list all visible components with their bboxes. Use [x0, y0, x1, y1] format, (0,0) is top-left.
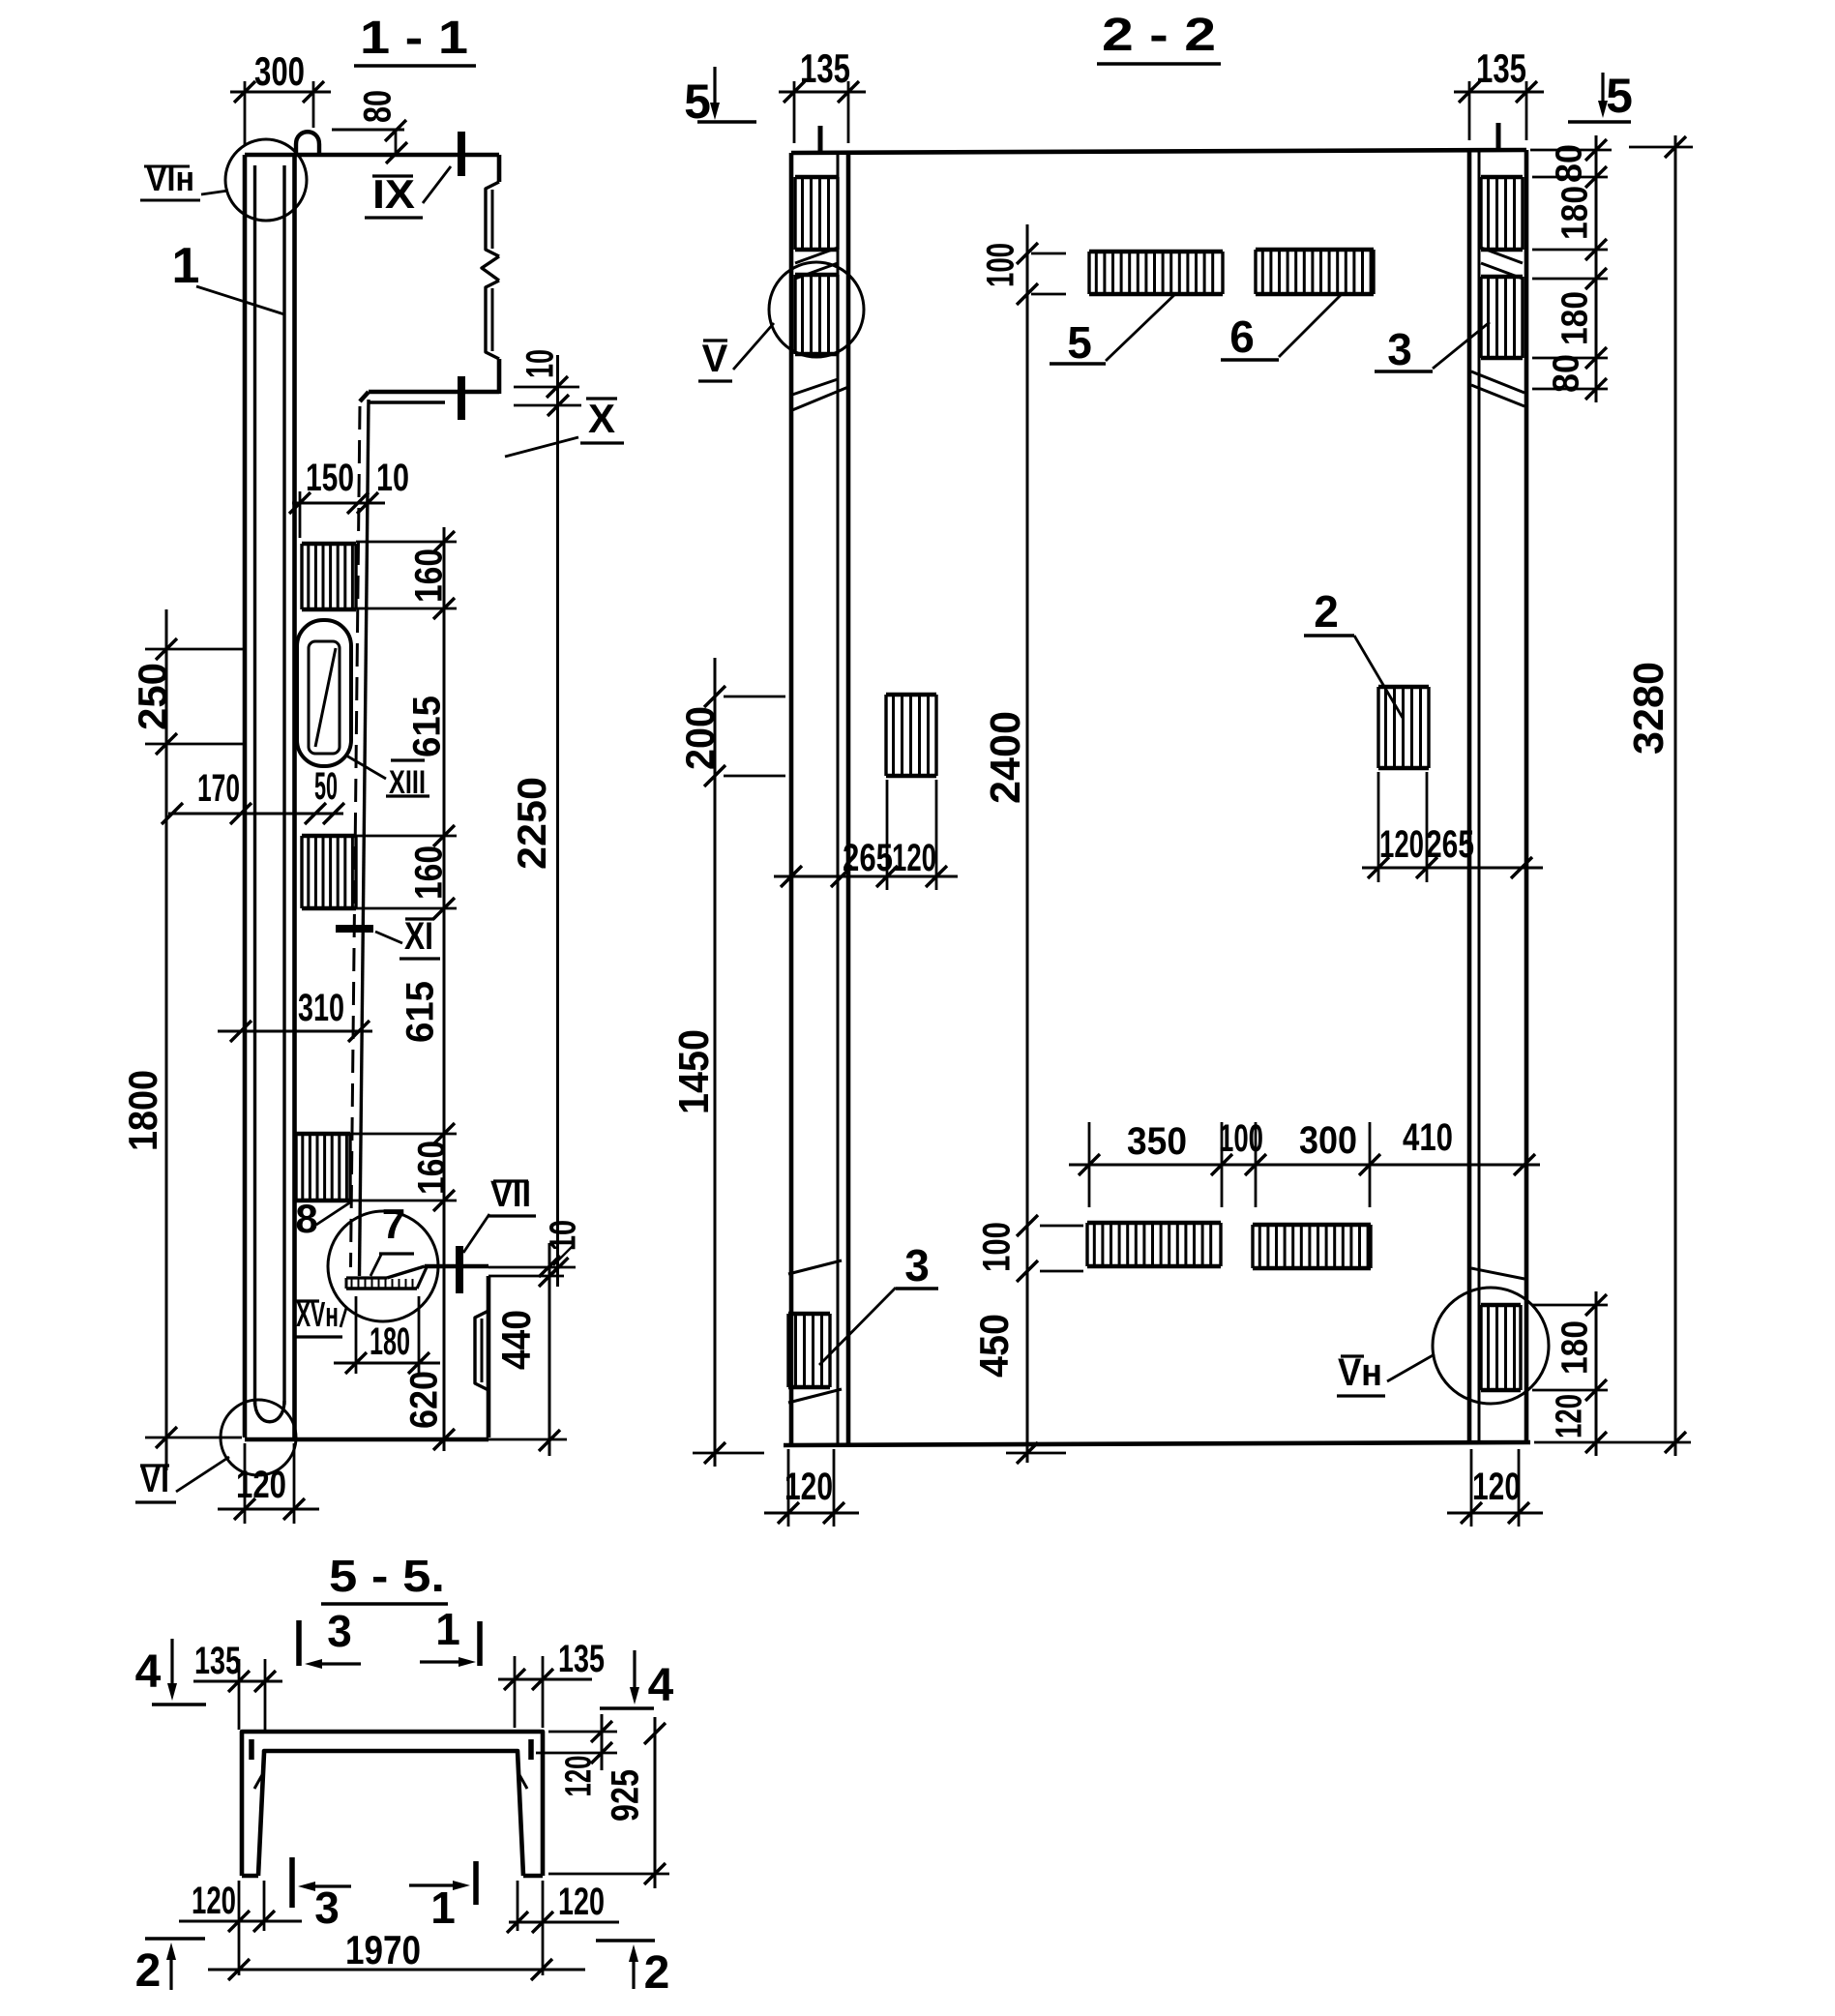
svg-text:4: 4 [135, 1646, 162, 1698]
svg-text:160: 160 [407, 845, 450, 900]
svg-text:3: 3 [1387, 324, 1412, 374]
svg-text:250: 250 [130, 663, 175, 730]
svg-text:V: V [702, 338, 728, 380]
svg-text:1800: 1800 [120, 1070, 165, 1151]
svg-text:100: 100 [1219, 1117, 1263, 1160]
svg-text:10: 10 [376, 457, 409, 499]
svg-text:120: 120 [558, 1881, 605, 1923]
svg-text:80: 80 [356, 90, 399, 123]
svg-text:620: 620 [402, 1371, 445, 1429]
svg-text:120: 120 [192, 1880, 236, 1922]
svg-text:265: 265 [1426, 823, 1474, 866]
svg-text:300: 300 [254, 48, 305, 94]
svg-text:1450: 1450 [670, 1029, 718, 1114]
svg-text:10: 10 [544, 1220, 584, 1251]
svg-text:80: 80 [1550, 144, 1590, 183]
svg-text:450: 450 [971, 1314, 1017, 1378]
svg-text:IX: IX [372, 171, 415, 217]
svg-text:50: 50 [314, 765, 338, 808]
svg-text:100: 100 [975, 1222, 1018, 1272]
svg-text:1: 1 [172, 238, 200, 294]
svg-text:VIн: VIн [146, 159, 194, 198]
svg-text:2 - 2: 2 - 2 [1102, 10, 1216, 61]
svg-text:7: 7 [382, 1201, 405, 1248]
svg-text:8: 8 [295, 1196, 317, 1241]
svg-text:2: 2 [644, 1947, 670, 1999]
svg-text:615: 615 [399, 981, 441, 1043]
svg-text:135: 135 [558, 1638, 605, 1680]
svg-text:120: 120 [892, 837, 936, 879]
svg-text:180: 180 [370, 1320, 410, 1363]
svg-text:180: 180 [1555, 1320, 1596, 1375]
svg-text:135: 135 [800, 45, 850, 91]
svg-text:4: 4 [648, 1660, 674, 1711]
svg-text:440: 440 [493, 1310, 539, 1370]
svg-text:80: 80 [1547, 354, 1587, 393]
svg-text:5: 5 [1067, 317, 1092, 368]
svg-text:120: 120 [784, 1466, 833, 1508]
svg-text:160: 160 [407, 548, 450, 603]
svg-text:5 - 5.: 5 - 5. [329, 1551, 445, 1601]
svg-text:180: 180 [1555, 291, 1596, 345]
svg-text:3: 3 [327, 1606, 352, 1656]
svg-text:5: 5 [1606, 69, 1633, 123]
svg-text:1: 1 [430, 1883, 456, 1933]
svg-text:6: 6 [1229, 311, 1255, 362]
svg-text:1970: 1970 [345, 1927, 421, 1972]
svg-text:2400: 2400 [982, 711, 1029, 804]
svg-text:120: 120 [559, 1756, 600, 1797]
svg-text:170: 170 [197, 767, 240, 810]
svg-text:135: 135 [1476, 45, 1526, 91]
svg-text:1 - 1: 1 - 1 [360, 13, 468, 64]
svg-text:XI: XI [404, 915, 433, 958]
svg-text:925: 925 [604, 1769, 646, 1822]
svg-text:410: 410 [1403, 1116, 1453, 1159]
svg-text:120: 120 [1379, 823, 1424, 866]
svg-text:2: 2 [1314, 586, 1339, 637]
svg-text:3: 3 [904, 1240, 930, 1290]
svg-text:100: 100 [979, 243, 1021, 287]
svg-text:135: 135 [194, 1640, 241, 1682]
svg-text:1: 1 [435, 1604, 460, 1654]
svg-text:160: 160 [410, 1141, 453, 1195]
svg-text:180: 180 [1555, 186, 1596, 240]
svg-text:10: 10 [518, 349, 561, 378]
svg-text:X: X [588, 396, 615, 441]
svg-text:615: 615 [405, 696, 448, 757]
svg-text:350: 350 [1127, 1120, 1187, 1163]
svg-text:120: 120 [1550, 1394, 1590, 1438]
svg-text:300: 300 [1299, 1119, 1357, 1162]
svg-text:120: 120 [1472, 1466, 1521, 1508]
svg-text:3: 3 [314, 1883, 340, 1933]
svg-text:3280: 3280 [1625, 662, 1672, 755]
svg-text:150: 150 [306, 457, 354, 499]
svg-text:2250: 2250 [509, 777, 554, 870]
svg-text:120: 120 [236, 1464, 286, 1506]
svg-text:265: 265 [843, 837, 893, 879]
svg-text:310: 310 [298, 987, 344, 1029]
svg-text:200: 200 [677, 706, 723, 770]
svg-text:2: 2 [135, 1945, 162, 1997]
